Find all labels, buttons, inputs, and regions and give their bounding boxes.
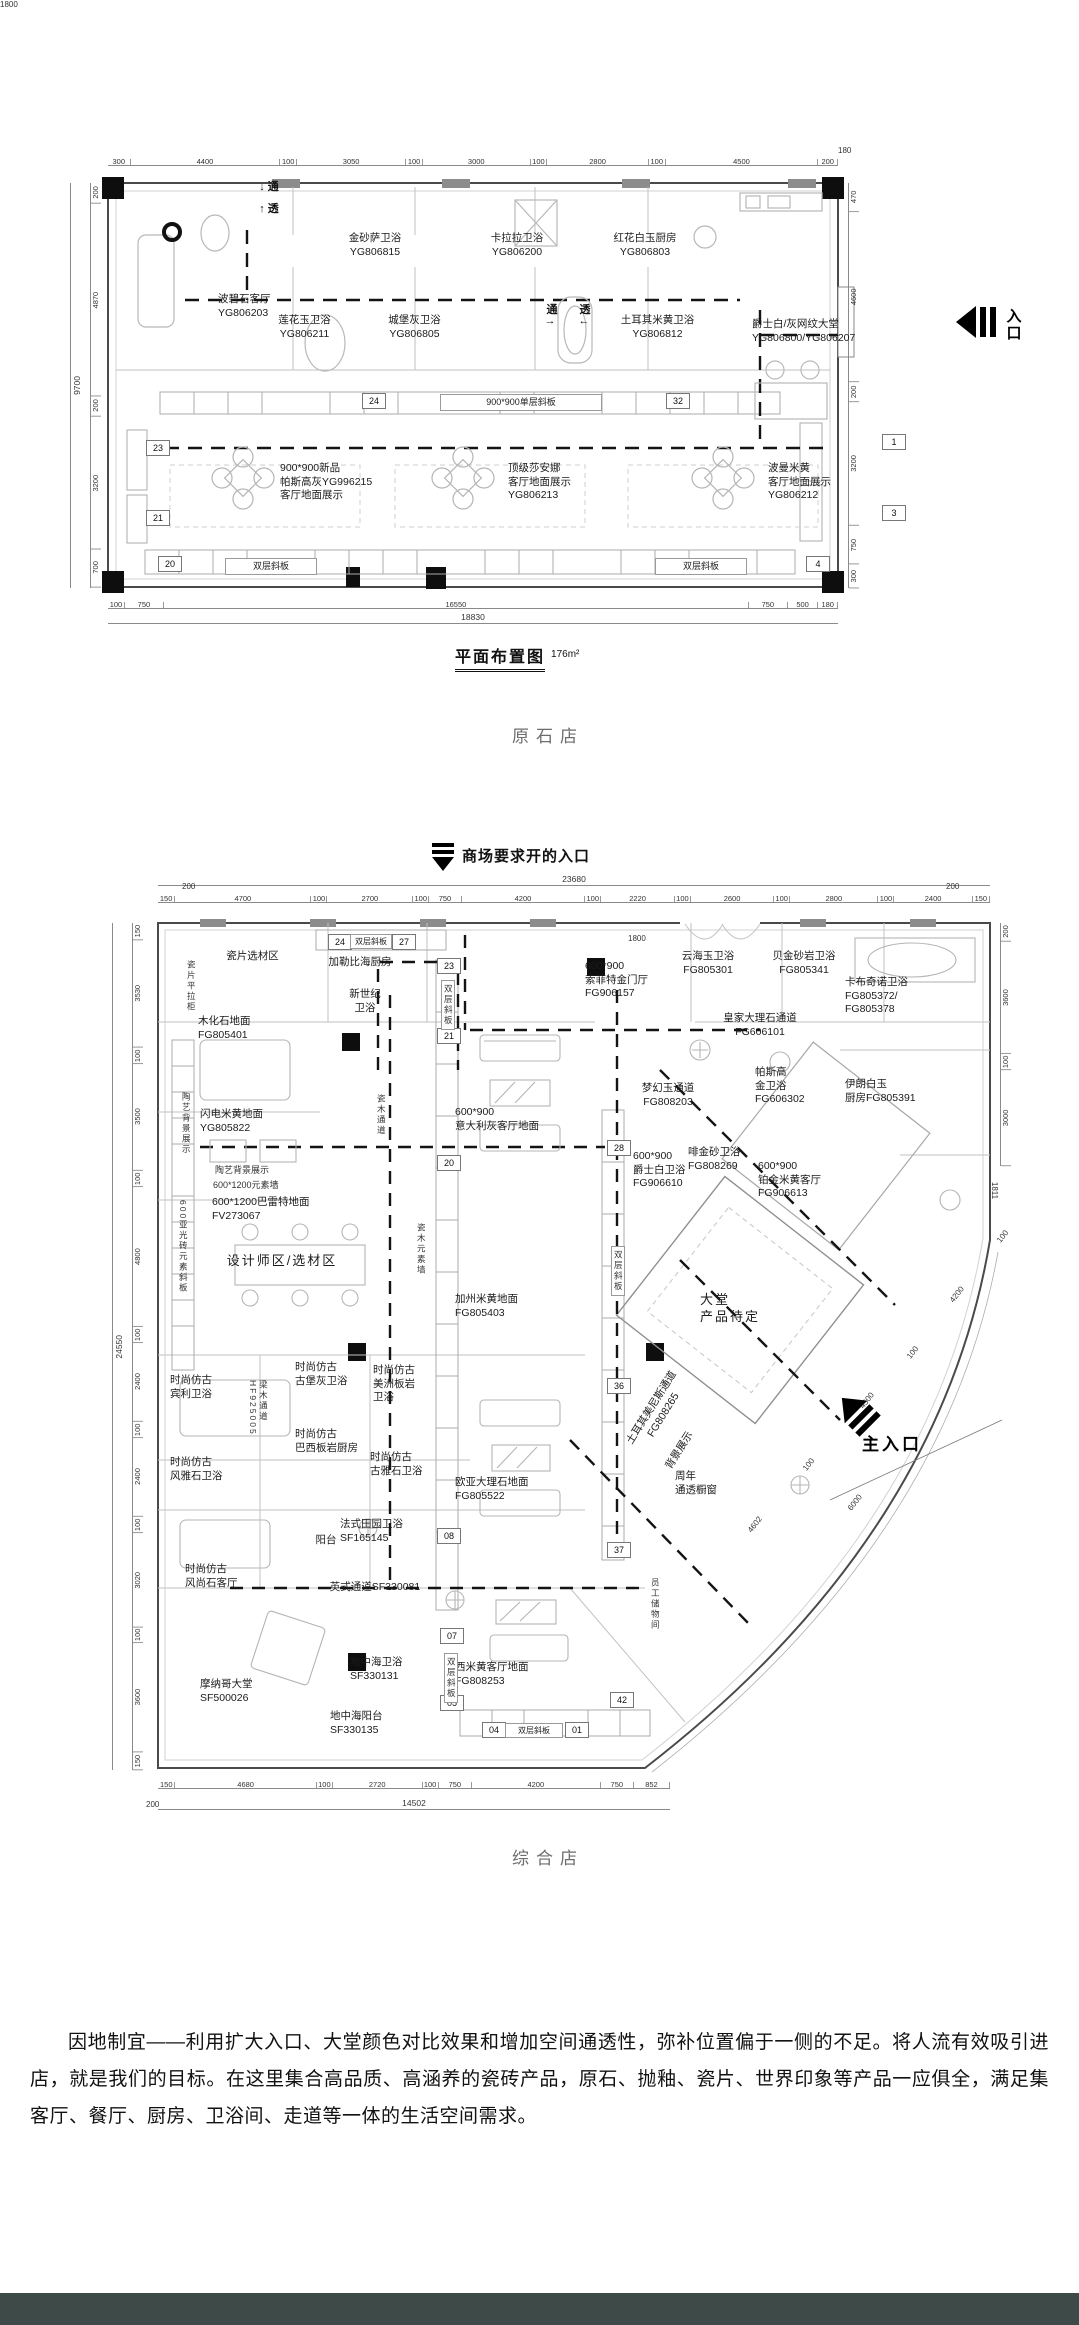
floor-plan-label: 1811 [990,1182,999,1199]
dimension-value: 100 [423,1782,439,1788]
floor-plan-label: 时尚仿古 宾利卫浴 [170,1374,242,1401]
number-tag: 04 [482,1722,506,1738]
floor-plan-label: 入 口 [1002,308,1026,343]
dimension-value: 100 [413,896,429,902]
number-tag: 23 [437,958,461,974]
floor-plan-label: 莲花玉卫浴 YG806211 [252,314,357,341]
dimension-value: 100 [406,159,423,165]
dimension-value: 300 [108,159,131,165]
plan2-dim-top: 1504700100270010075042001002220100260010… [158,890,990,903]
dimension-value: 9700 [72,376,82,395]
dimension-value: 23680 [562,874,586,884]
dimension-value: 3050 [297,159,406,165]
dimension-value: 4600 [849,212,859,382]
entry-bar-icon [980,307,986,337]
footer-bar [0,2293,1079,2325]
dimension-value: 100 [133,1171,143,1187]
floor-plan-label: 200 [946,882,959,891]
dimension-value: 4200 [462,896,586,902]
floor-plan-label: 设计师区/选材区 [222,1253,342,1270]
floor-plan-label: 云海玉卫浴 FG805301 [662,950,754,977]
dimension-value: 200 [91,183,101,204]
dimension-value: 200 [818,159,838,165]
dimension-value: 2800 [790,896,878,902]
plan2-mall-entry-note: 商场要求开的入口 [462,845,590,866]
floor-plan-label: 双层斜板 [655,558,747,575]
dimension-value: 14502 [402,1798,426,1808]
floor-plan-label: 法式田园卫浴 SF165145 [340,1518,440,1545]
floor-plan-label: 瓷木通道 [376,1094,386,1136]
floor-plan-label: 600*900 铂金米黄客厅 FG906613 [758,1160,860,1201]
floor-plan-label: 员工储物间 [650,1578,660,1631]
plan-area-text: 176m² [551,649,579,660]
dimension-value: 470 [849,183,859,212]
plan1-dim-top: 30044001003050100300010028001004500200 [108,153,838,166]
dimension-value: 100 [531,159,548,165]
floor-plan-label: 欧亚大理石地面 FG805522 [455,1476,567,1503]
floor-plan-label: 加州米黄地面 FG805403 [455,1293,565,1320]
floor-plan-label: 200 [146,1800,159,1809]
dimension-value: 750 [429,896,461,902]
dimension-value: 16550 [164,602,749,608]
floor-plan-label: 地中海阳台 SF330135 [330,1710,422,1737]
dimension-value: 100 [649,159,666,165]
floor-plan-label: 陶艺背景展示 [215,1163,305,1176]
plan-title-text: 平面布置图 [455,643,545,672]
dimension-value: 100 [585,896,601,902]
description-paragraph: 因地制宜——利用扩大入口、大堂颜色对比效果和增加空间通透性，弥补位置偏于一侧的不… [30,2024,1049,2135]
entry-arrow-down-icon [432,843,454,871]
dimension-value: 4700 [175,896,311,902]
number-tag: 01 [565,1722,589,1738]
plan1-dim-overall-bottom: 18830 [108,612,838,624]
number-tag: 20 [158,556,182,572]
floor-plan-label: 时尚仿古 风尚石客厅 [185,1563,273,1590]
number-tag: 27 [392,934,416,950]
dimension-value: 750 [439,1782,472,1788]
entry-bar-icon [432,850,454,854]
entry-triangle-icon [432,857,454,871]
floor-plan-label: 木化石地面 FG805401 [198,1015,288,1042]
floor-plan-label: 贝金砂岩卫浴 FG805341 [752,950,856,977]
dimension-value: 750 [849,526,859,564]
floor-plan-label: 时尚仿古 风雅石卫浴 [170,1456,258,1483]
plan2-dim-overall-left: 24550 [112,923,125,1770]
floor-plan-label: 时尚仿古 美洲板岩 卫浴 [373,1364,445,1405]
plan1-title: 平面布置图 176m² [455,643,579,672]
plan1-caption: 原石店 [512,722,584,747]
number-tag: 08 [437,1528,461,1544]
dimension-value: 150 [158,896,175,902]
floor-plan-label: 红花白玉厨房 YG806803 [585,232,705,259]
floor-plan-label: 梦幻玉通道 FG808203 [618,1082,718,1109]
number-tag: 双层斜板 [505,1723,563,1738]
number-tag: 24 [328,934,352,950]
number-tag: 双层斜板 [611,1246,625,1296]
plan1-dim-overall-left: 9700 [70,183,83,588]
dimension-value: 200 [849,382,859,402]
plan1-dim-right: 47046002003200750300 [848,183,861,588]
dimension-value: 3000 [423,159,531,165]
number-tag: 36 [607,1378,631,1394]
number-tag: 双层斜板 [350,934,392,949]
entry-arrow-left-icon [956,306,996,338]
floor-plan-label: 土耳其米黄卫浴 YG806812 [590,314,725,341]
dimension-value: 100 [317,1782,333,1788]
floor-plan-label: 瓷木元素墙 [416,1223,426,1276]
page: 30044001003050100300010028001004500200 1… [0,0,1079,2325]
floor-plan-label: 陶艺背景展示 [181,1092,191,1155]
dimension-value: 100 [133,1422,143,1438]
dimension-value: 500 [788,602,819,608]
dimension-value: 100 [108,602,125,608]
dimension-value: 200 [91,396,101,417]
floor-plan-label: 600*900 意大利灰客厅地面 [455,1106,587,1133]
dimension-value: 100 [133,1048,143,1064]
dimension-value: 18830 [461,612,485,622]
dimension-value: 150 [133,923,143,940]
floor-plan-label: 900*900单层斜板 [440,394,602,411]
dimension-value: 2220 [601,896,675,902]
number-tag: 4 [806,556,830,572]
floor-plan-label: 600*1200元素墙 [213,1178,323,1191]
floor-plan-label: 新世纪 卫浴 [330,988,400,1015]
dimension-value: 2720 [333,1782,423,1788]
dimension-value: 200 [1001,923,1011,942]
dimension-value: 4500 [666,159,819,165]
floor-plan-label: 金砂萨卫浴 YG806815 [320,232,430,259]
dimension-value: 150 [973,896,990,902]
number-tag: 21 [437,1028,461,1044]
floor-plan-label: ↑ 透 [243,200,295,216]
floor-plan-label: → [540,315,560,327]
dimension-value: 100 [675,896,691,902]
dimension-value: 4400 [131,159,281,165]
floor-plan-label: 600*1200巴雷特地面 FV273067 [212,1196,352,1223]
floor-plan-label: 爵士白/灰网纹大堂 YG806800/YG806207 [752,318,874,345]
dimension-value: 100 [1001,1054,1011,1070]
floor-plan-label: 英式通道SF330081 [308,1581,442,1595]
floor-plan-label: 顶级莎安娜 客厅地面展示 YG806213 [508,462,618,503]
dimension-value: 180 [818,602,838,608]
dimension-value: 100 [133,1627,143,1643]
floor-plan-label: 闪电米黄地面 YG805822 [200,1108,300,1135]
plan2-dim-bottom: 150468010027201007504200750852 [158,1776,670,1789]
floor-plan-label: 梁木通道 HF925005 [248,1380,268,1436]
dimension-value: 100 [774,896,790,902]
number-tag: 21 [146,510,170,526]
plan1-dim-left: 20048702003200700 [90,183,103,588]
dimension-value: 4200 [472,1782,601,1788]
dimension-value: 700 [91,549,101,588]
dimension-value: 3530 [133,940,143,1048]
dimension-value: 150 [158,1782,175,1788]
dimension-value: 300 [849,565,859,588]
dimension-value: 2700 [327,896,413,902]
dimension-value: 4870 [91,204,101,396]
dimension-value: 750 [601,1782,634,1788]
number-tag: 23 [146,440,170,456]
dimension-value: 100 [280,159,297,165]
dimension-value: 3600 [1001,942,1011,1054]
floor-plan-label: 1800 [628,934,646,943]
dimension-value: 2600 [691,896,774,902]
floor-plan-label: 加勒比海厨房 [308,956,412,970]
floor-plan-label: 600亚光砖元素斜板 [178,1200,188,1294]
plan2-dim-overall-top: 23680 [158,874,990,886]
number-tag: 28 [607,1140,631,1156]
number-tag: 双层斜板 [444,1653,458,1703]
dimension-value: 100 [311,896,327,902]
floor-plan-label: 时尚仿古 古雅石卫浴 [370,1451,458,1478]
floor-plan-label: 卡布奇诺卫浴 FG805372/ FG805378 [845,976,940,1017]
dimension-value: 3500 [133,1064,143,1171]
plan2-dim-left: 1503530100350010048001002400100240010030… [132,923,145,1770]
dimension-value: 2400 [894,896,972,902]
floor-plan-label: 双层斜板 [225,558,317,575]
number-tag: 32 [666,393,690,409]
floor-plan-label: 瓷片平拉柜 [186,960,196,1013]
floor-plan-label: ← [574,315,594,327]
number-tag: 20 [437,1155,461,1171]
floor-plan-label: 主入口 [862,1430,954,1455]
floor-plan-label: 伊朗白玉 厨房FG805391 [845,1078,941,1105]
number-tag: 07 [440,1628,464,1644]
entry-bar-icon [432,843,454,847]
floor-plan-label: 200 [182,882,195,891]
dimension-value: 750 [125,602,164,608]
number-tag: 3 [882,505,906,521]
dimension-value: 2800 [547,159,649,165]
floor-plan-label: 城堡灰卫浴 YG806805 [362,314,467,341]
dimension-value: 3200 [91,417,101,550]
dimension-value: 2400 [133,1438,143,1517]
floor-plan-label: 卡拉拉卫浴 YG806200 [462,232,572,259]
entry-bar-icon [990,307,996,337]
number-tag: 双层斜板 [441,980,455,1030]
floor-plan-label: 阳台 [308,1534,344,1548]
dimension-value: 24550 [114,1335,124,1359]
entry-triangle-icon [956,306,976,338]
plan1-dim-bottom: 10075016550750500180 [108,596,838,609]
floor-plan-label: 时尚仿古 古堡灰卫浴 [295,1361,383,1388]
floor-plan-label: 瓷片选材区 [205,950,300,964]
floor-plan-label: 周年 通透橱窗 [675,1470,747,1497]
dimension-value: 3000 [1001,1070,1011,1166]
dimension-value: 750 [749,602,788,608]
plan2-caption: 综合店 [512,1844,584,1869]
number-tag: 42 [610,1692,634,1708]
floor-plan-label: 皇家大理石通道 FG606101 [698,1012,822,1039]
dimension-value: 100 [133,1327,143,1343]
floor-plan-label: 帕斯高 金卫浴 FG606302 [755,1066,833,1107]
floor-plan-label: 180 [838,146,851,155]
number-tag: 24 [362,393,386,409]
dimension-value: 852 [634,1782,670,1788]
dimension-value: 2400 [133,1343,143,1422]
dimension-value: 4680 [175,1782,316,1788]
number-tag: 37 [607,1542,631,1558]
floor-plan-label: 西米黄客厅地面 FG808253 [455,1661,567,1688]
dimension-value: 100 [133,1517,143,1533]
plan2-dim-overall-bottom: 14502 [158,1798,670,1810]
dimension-value: 3600 [133,1643,143,1752]
dimension-value: 3020 [133,1533,143,1628]
dimension-value: 150 [133,1753,143,1770]
number-tag: 1 [882,434,906,450]
floor-plan-label: 摩纳哥大堂 SF500026 [200,1678,292,1705]
floor-plan-label: 900*900新品 帕斯高灰YG996215 客厅地面展示 [280,462,415,503]
dimension-value: 100 [878,896,894,902]
floor-plan-label: 大堂 产品待定 [700,1292,786,1326]
plan2-dim-right: 20036001003000 [1000,923,1013,1166]
floor-plan-label: 波曼米黄 客厅地面展示 YG806212 [768,462,873,503]
floor-plan-label: 地中海卫浴 SF330131 [350,1656,442,1683]
dimension-value: 4800 [133,1187,143,1327]
floor-plan-label: ↓ 通 [243,178,295,194]
